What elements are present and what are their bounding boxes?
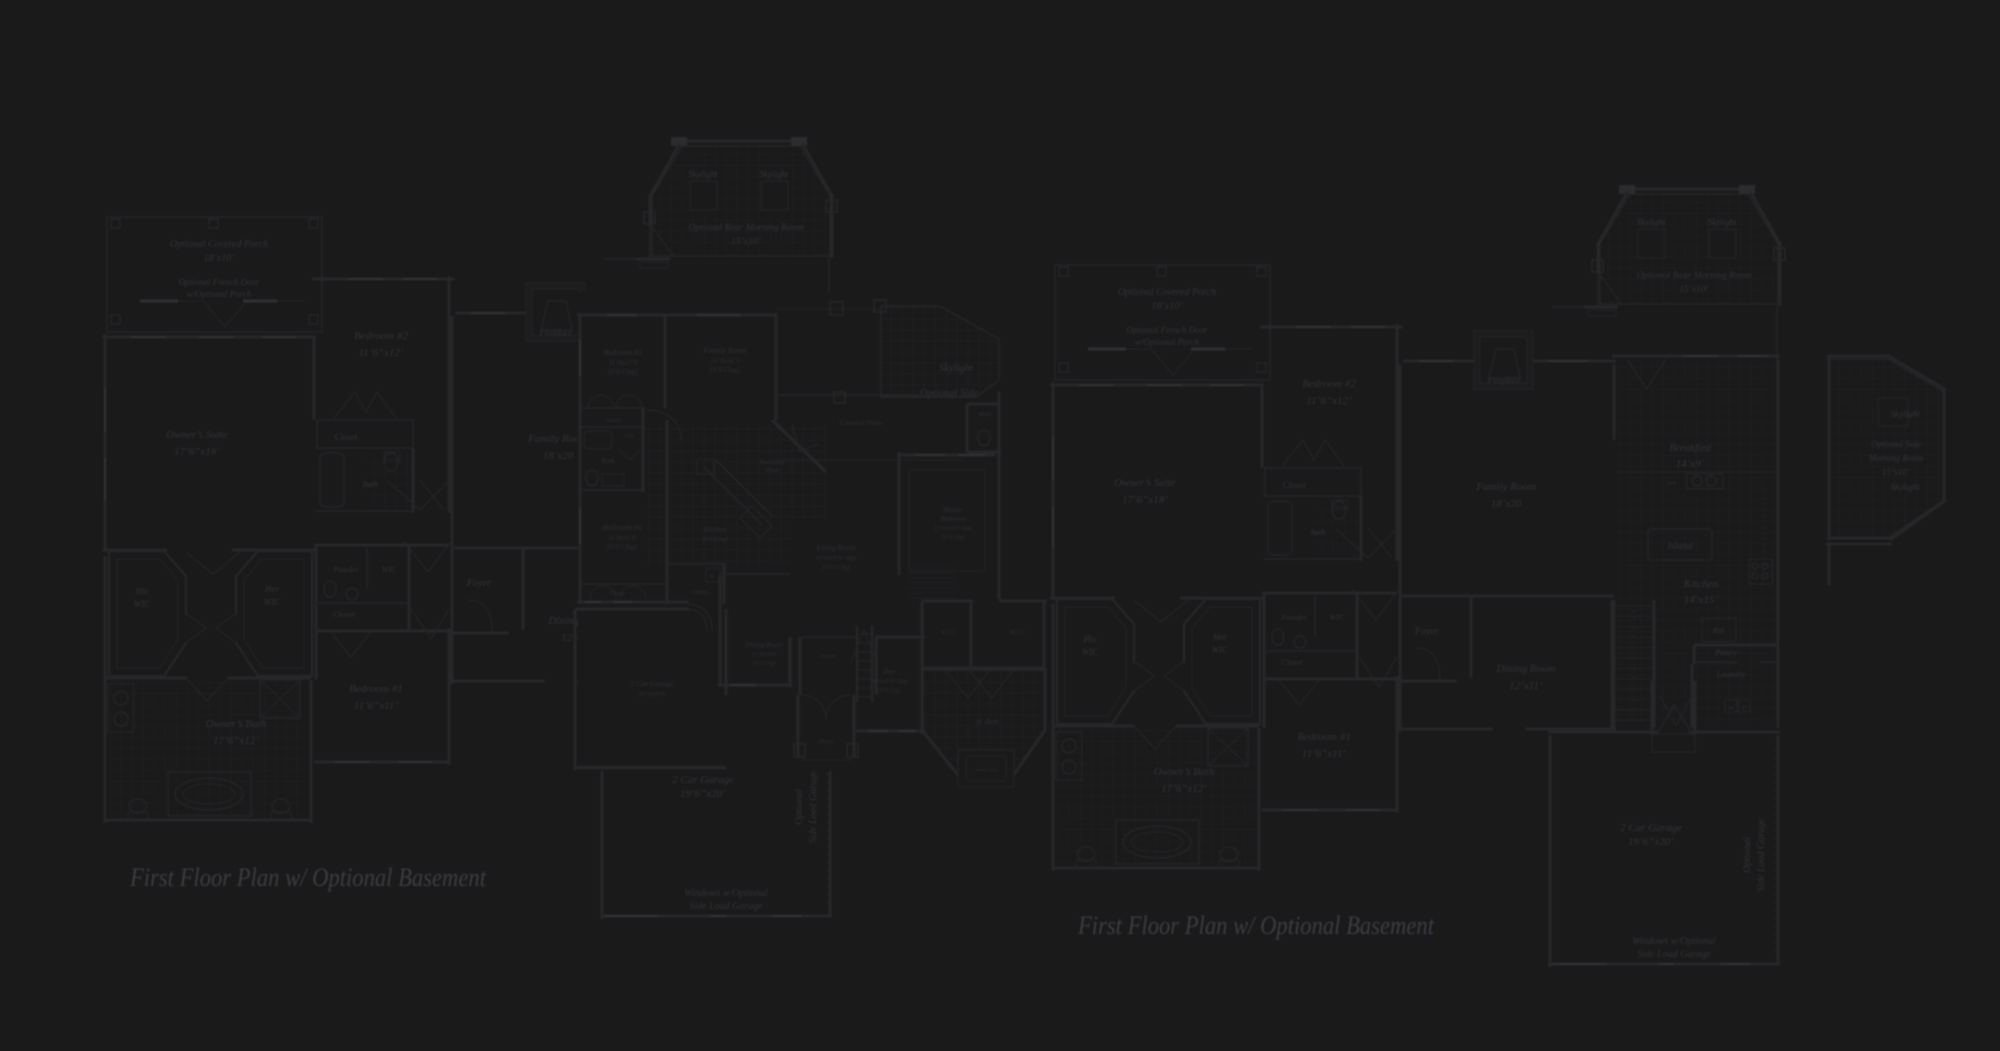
svg-text:Master: Master — [942, 506, 963, 514]
svg-text:13’0x16’0+Bay: 13’0x16’0+Bay — [934, 526, 972, 532]
svg-text:Closet: Closet — [605, 418, 621, 424]
svg-text:Dining Room: Dining Room — [744, 641, 783, 649]
svg-text:[9’0 Clg]: [9’0 Clg] — [878, 688, 902, 694]
svg-text:Utility: Utility — [692, 589, 709, 596]
svg-text:Family Room: Family Room — [702, 346, 747, 355]
svg-text:W: W — [709, 574, 715, 580]
svg-text:[9’0 Clng]: [9’0 Clng] — [702, 537, 729, 543]
svg-text:M. Bath: M. Bath — [975, 718, 999, 726]
svg-text:Bath: Bath — [979, 411, 991, 418]
svg-text:Bath: Bath — [601, 457, 615, 465]
svg-text:Living Room: Living Room — [816, 543, 856, 552]
svg-text:Optional Side: Optional Side — [920, 388, 978, 399]
svg-text:Entry: Entry — [818, 738, 834, 745]
svg-text:W.I.C.: W.I.C. — [1010, 629, 1027, 636]
svg-text:Bedroom: Bedroom — [940, 515, 965, 523]
svg-text:20’0x20’0: 20’0x20’0 — [639, 691, 666, 698]
svg-text:[9’0 Clng]: [9’0 Clng] — [710, 366, 740, 374]
svg-text:Closet: Closet — [609, 591, 625, 597]
svg-text:Foyer: Foyer — [819, 653, 836, 660]
svg-text:Covered Patio: Covered Patio — [839, 418, 883, 427]
svg-text:[9’0 Clng]: [9’0 Clng] — [608, 368, 638, 376]
svg-text:16’0x18’5: 16’0x18’5 — [711, 357, 740, 365]
svg-text:2 Car Garage: 2 Car Garage — [631, 679, 674, 688]
svg-text:Bedroom #4: Bedroom #4 — [602, 523, 641, 532]
svg-text:Bedroom #3: Bedroom #3 — [603, 348, 642, 357]
svg-text:10’0x11’0+Bay: 10’0x11’0+Bay — [870, 679, 908, 685]
svg-text:[9’0 Clg]: [9’0 Clg] — [942, 535, 966, 541]
svg-text:Lin: Lin — [624, 433, 633, 439]
svg-text:11’0x14’0: 11’0x14’0 — [752, 651, 776, 658]
svg-text:[9’0 Clg]: [9’0 Clg] — [753, 661, 777, 667]
svg-text:Skylight: Skylight — [939, 363, 974, 374]
svg-text:Den: Den — [882, 668, 895, 676]
svg-text:W.I.C.: W.I.C. — [941, 629, 958, 636]
svg-text:11’0x11’0: 11’0x11’0 — [608, 534, 636, 542]
svg-text:[9’0 Clng]: [9’0 Clng] — [607, 543, 637, 551]
svg-text:Garden Tub: Garden Tub — [975, 767, 997, 772]
svg-text:11’0x12’0: 11’0x12’0 — [609, 359, 638, 367]
svg-text:Kitchen: Kitchen — [703, 526, 726, 534]
svg-text:15’0x21’0+Bay: 15’0x21’0+Bay — [815, 555, 856, 562]
svg-text:[10’0 Clg]: [10’0 Clg] — [822, 564, 850, 571]
svg-text:Nook: Nook — [764, 467, 779, 474]
